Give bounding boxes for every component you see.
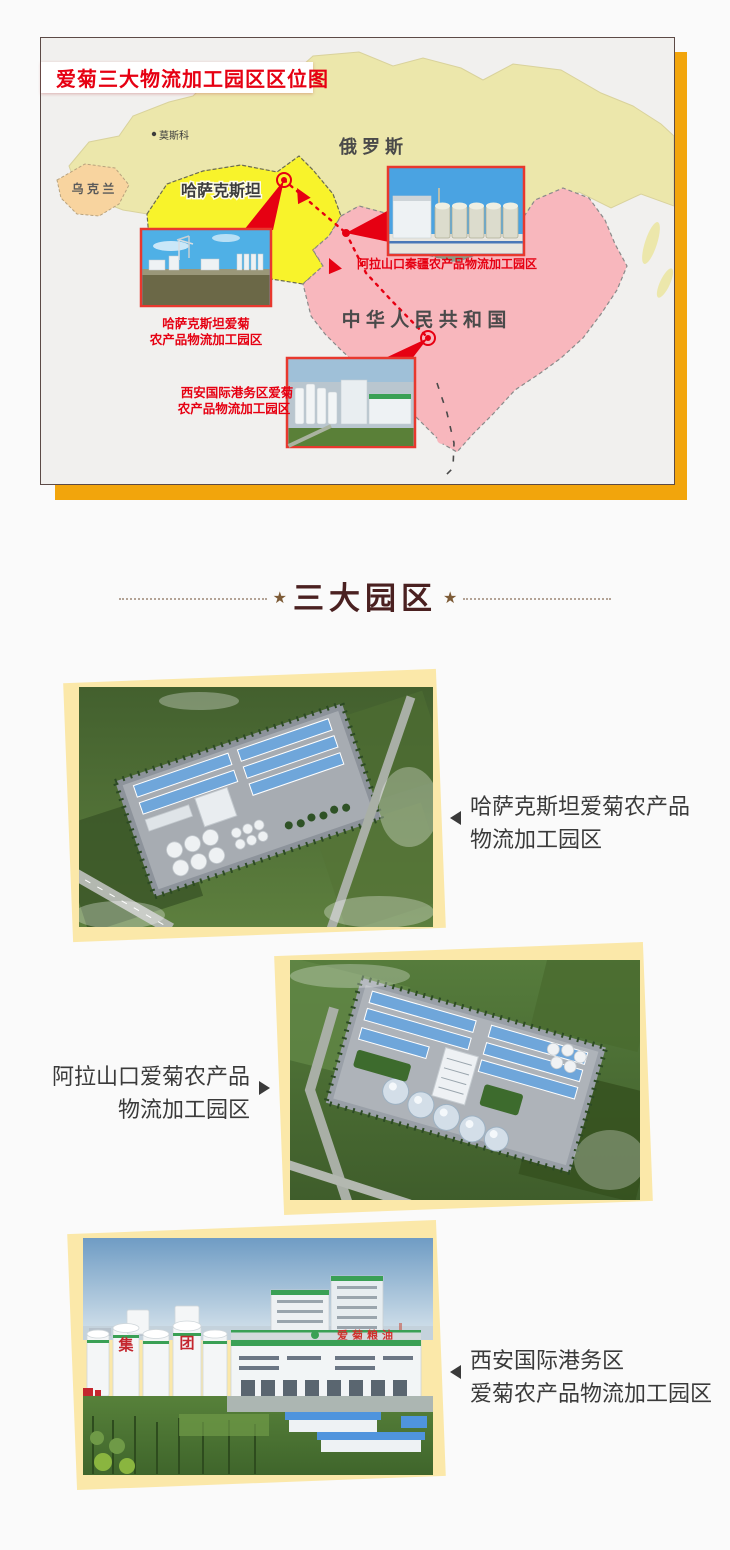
page: 莫斯科 俄 罗 斯 乌 克 兰 哈萨克斯坦 中 华 人 民 共 和 国 阿拉山口… [0,0,730,1550]
moscow-label: 莫斯科 [159,129,189,142]
dotted-line-left [119,598,267,600]
pointer-left-icon [450,811,461,825]
photo-xian-park: 爱菊粮油 [83,1238,433,1475]
alashankou-park-render [290,960,640,1200]
pointer-left-icon [450,1365,461,1379]
kazakhstan-park-render [79,687,433,927]
caption-line2: 物流加工园区 [470,823,690,856]
section-header: ★ 三大园区 ★ [0,580,730,618]
moscow-dot [152,132,156,136]
location-map-card: 莫斯科 俄 罗 斯 乌 克 兰 哈萨克斯坦 中 华 人 民 共 和 国 阿拉山口… [40,37,675,485]
pointer-right-icon [259,1081,270,1095]
photo-alashankou-park [290,960,640,1200]
map-photo-kazakhstan-park [141,229,271,306]
caption-line1: 哈萨克斯坦爱菊农产品 [470,790,690,823]
kazakhstan-park-label-line1: 哈萨克斯坦爱菊 [162,316,250,331]
photo-kazakhstan-park [79,687,433,927]
section-title: 三大园区 [293,580,437,618]
kazakhstan-label: 哈萨克斯坦 [181,181,261,200]
ukraine-label: 乌 克 兰 [72,181,115,196]
china-label: 中 华 人 民 共 和 国 [342,308,507,331]
dotted-line-right [463,598,611,600]
island-hainan [437,434,447,444]
map-title-text: 爱菊三大物流加工园区区位图 [41,63,329,92]
tank-character-right: 团 [179,1335,194,1352]
map-title-banner: 爱菊三大物流加工园区区位图 [41,62,313,93]
caption-line2: 物流加工园区 [40,1093,250,1126]
tank-character-left: 集 [117,1336,134,1354]
location-dot-alashankou [342,229,350,237]
russia-label: 俄 罗 斯 [338,136,403,157]
map-photo-alashankou-park [388,167,524,255]
xian-park-label-line2: 农产品物流加工园区 [177,401,291,416]
caption-alashankou-park: 阿拉山口爱菊农产品 物流加工园区 [40,1060,270,1126]
caption-line1: 阿拉山口爱菊农产品 [40,1060,250,1093]
caption-kazakhstan-park: 哈萨克斯坦爱菊农产品 物流加工园区 [450,790,690,856]
location-map: 莫斯科 俄 罗 斯 乌 克 兰 哈萨克斯坦 中 华 人 民 共 和 国 阿拉山口… [41,38,674,484]
caption-line1: 西安国际港务区 [470,1344,712,1377]
caption-xian-park: 西安国际港务区 爱菊农产品物流加工园区 [450,1344,712,1410]
xian-park-photo: 爱菊粮油 [83,1238,433,1475]
islands-east [638,220,674,299]
star-icon: ★ [443,580,457,618]
alashankou-park-label: 阿拉山口秦疆农产品物流加工园区 [357,256,537,271]
xian-park-label-line1: 西安国际港务区爱菊 [181,385,294,400]
star-icon: ★ [273,580,287,618]
map-photo-xian-park [287,358,415,447]
caption-line2: 爱菊农产品物流加工园区 [470,1377,712,1410]
kazakhstan-park-label-line2: 农产品物流加工园区 [149,332,263,347]
